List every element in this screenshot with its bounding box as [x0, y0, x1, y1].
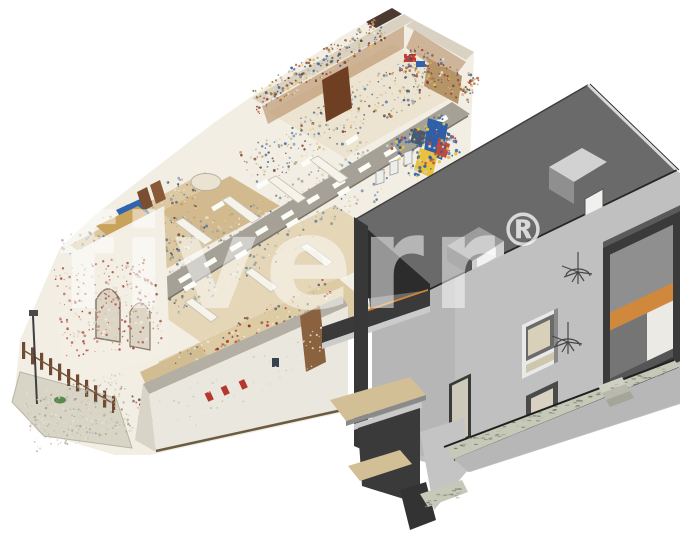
pole-top — [29, 310, 38, 316]
office-chair — [272, 358, 279, 367]
watermark: fiverr ® — [58, 187, 546, 339]
watermark-text: fiverr — [58, 187, 502, 339]
scan-to-bim-render: fiverr ® — [0, 0, 680, 533]
watermark-registered-icon: ® — [500, 203, 546, 257]
